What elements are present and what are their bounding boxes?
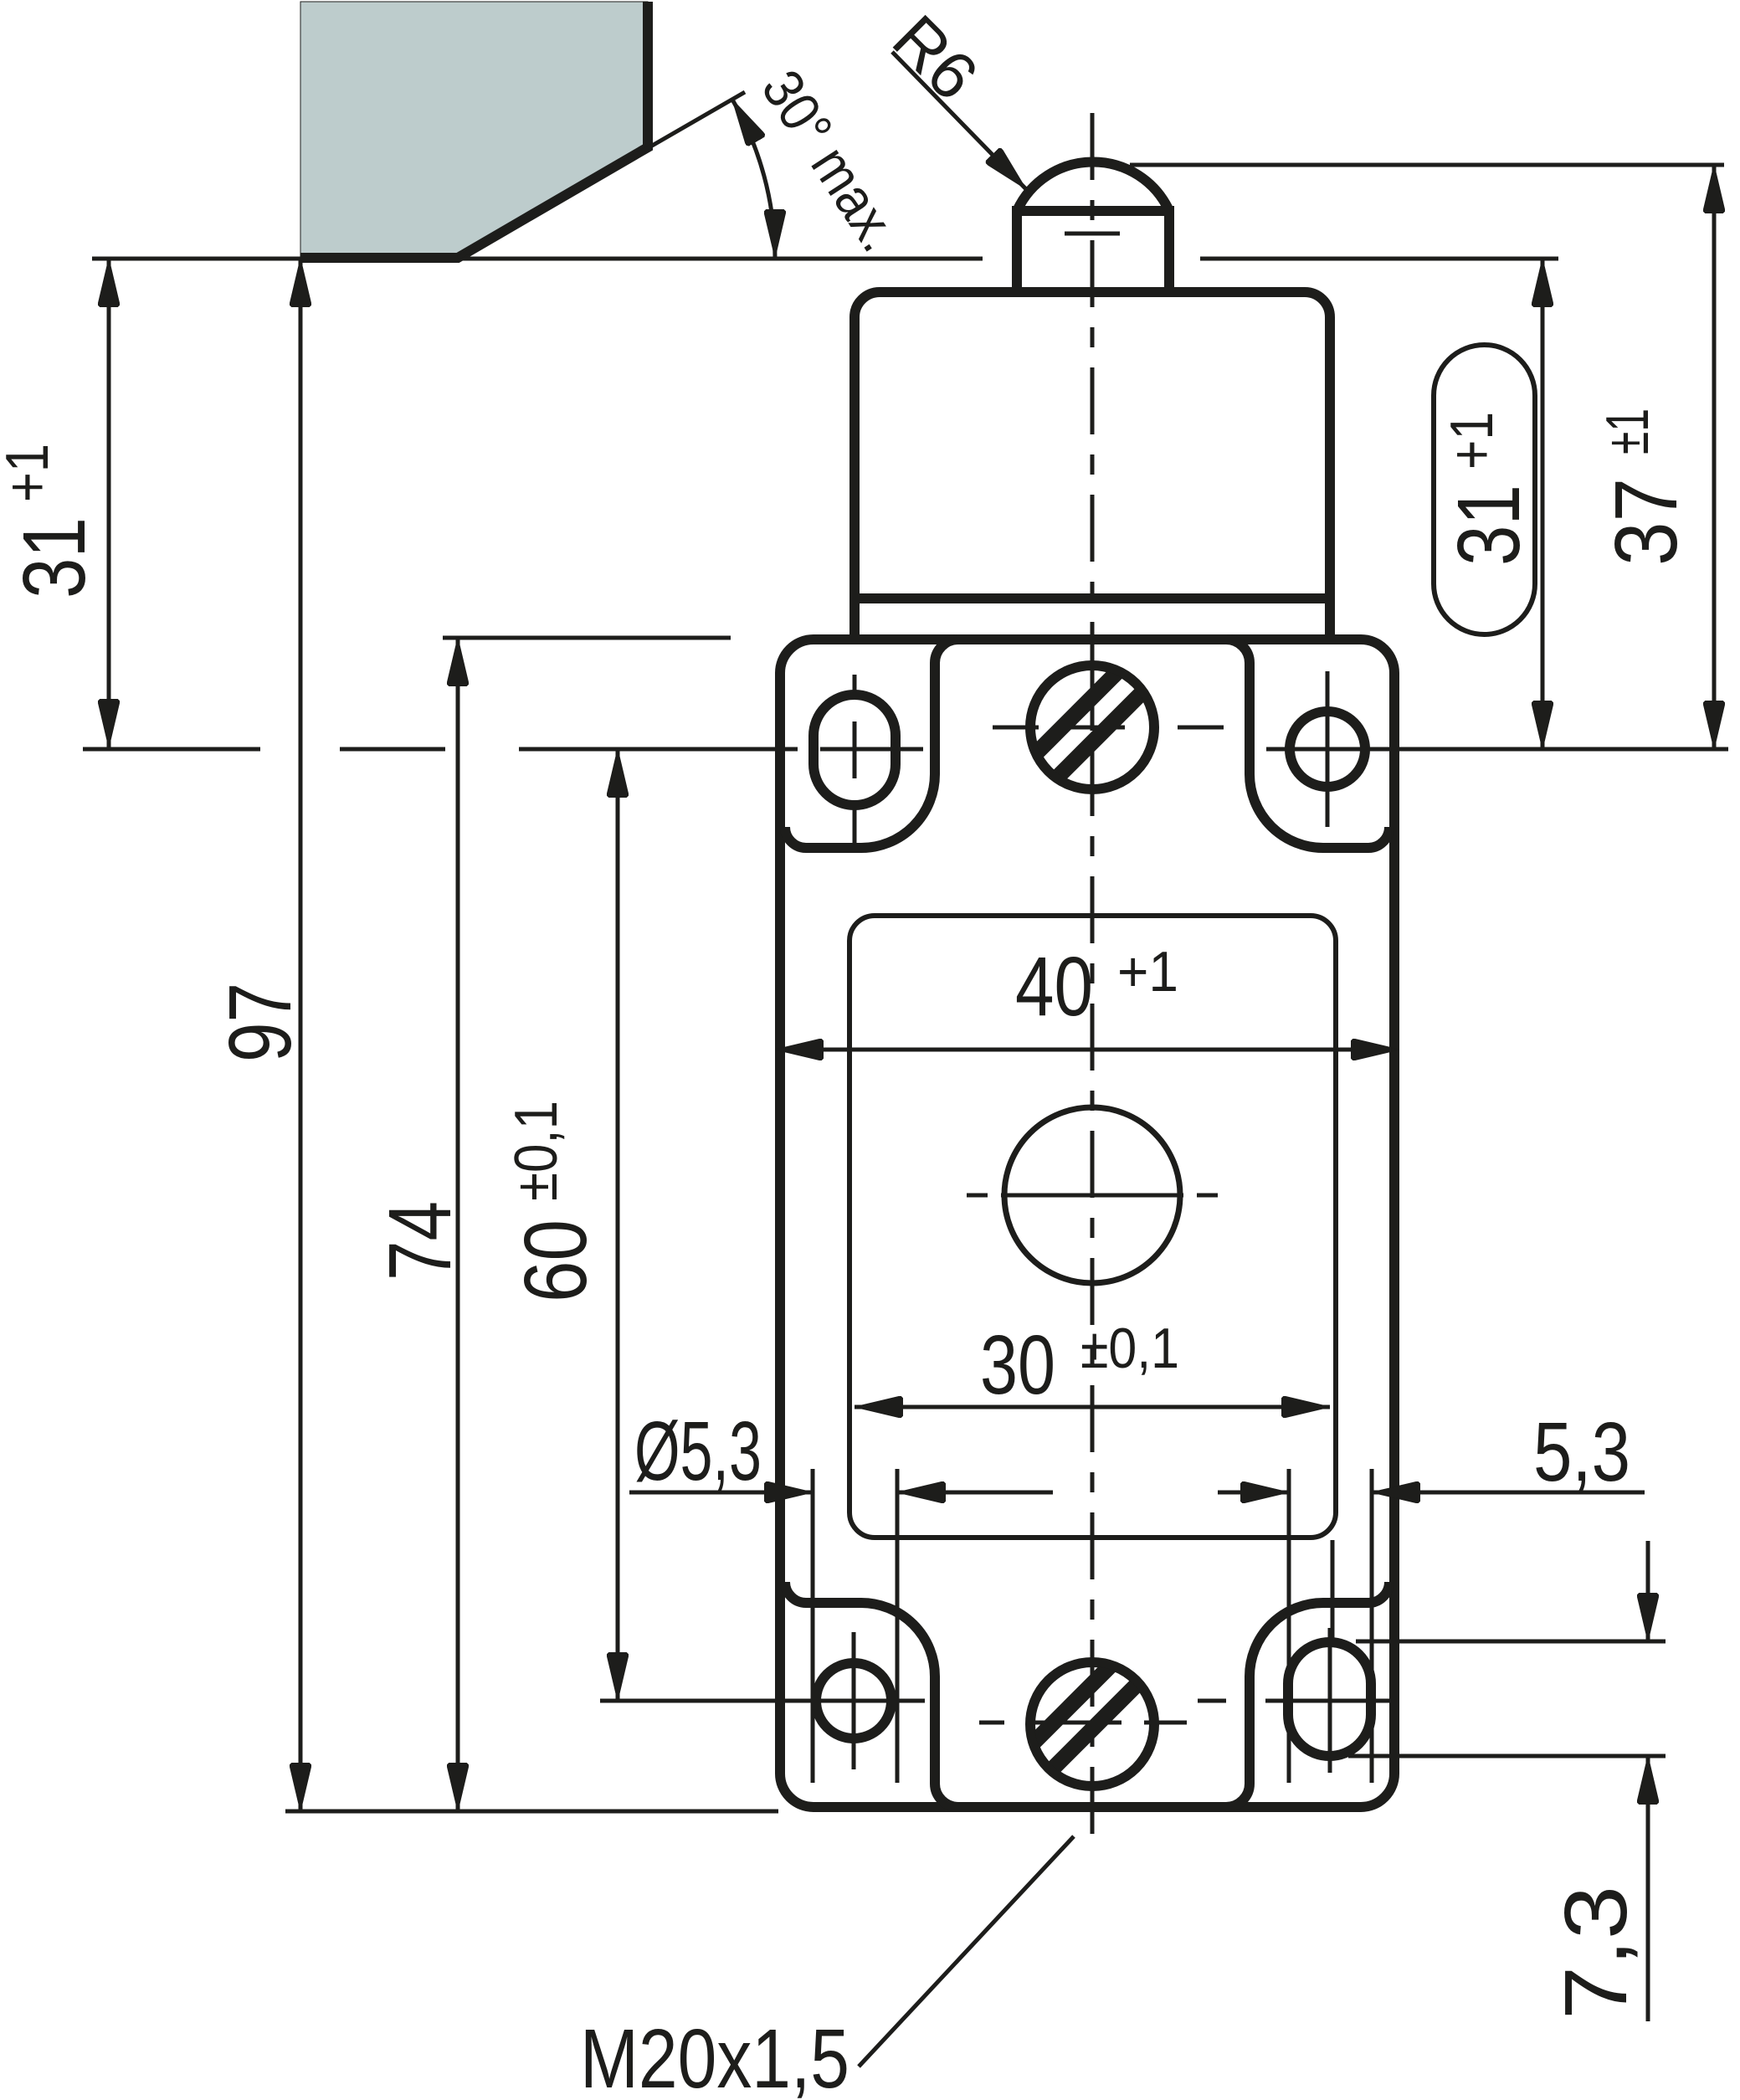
svg-text:7,3: 7,3: [1547, 1886, 1645, 2020]
svg-text:±0,1: ±0,1: [1080, 1317, 1179, 1380]
svg-text:M20x1,5: M20x1,5: [580, 2012, 849, 2100]
svg-text:31: 31: [1440, 485, 1538, 566]
svg-text:5,3: 5,3: [1533, 1405, 1630, 1499]
svg-text:74: 74: [371, 1201, 470, 1281]
svg-text:+1: +1: [0, 444, 61, 502]
svg-text:R6: R6: [879, 1, 992, 114]
svg-text:±1: ±1: [1594, 408, 1661, 454]
svg-text:31: 31: [5, 517, 104, 598]
svg-text:+1: +1: [1439, 412, 1506, 470]
svg-text:97: 97: [211, 983, 310, 1062]
svg-text:Ø5,3: Ø5,3: [634, 1404, 762, 1498]
svg-text:±0,1: ±0,1: [503, 1101, 570, 1201]
svg-text:37: 37: [1597, 478, 1696, 566]
svg-text:+1: +1: [1117, 940, 1178, 1004]
svg-text:40: 40: [1015, 940, 1093, 1034]
svg-text:60: 60: [506, 1219, 605, 1302]
svg-text:30: 30: [980, 1318, 1055, 1412]
